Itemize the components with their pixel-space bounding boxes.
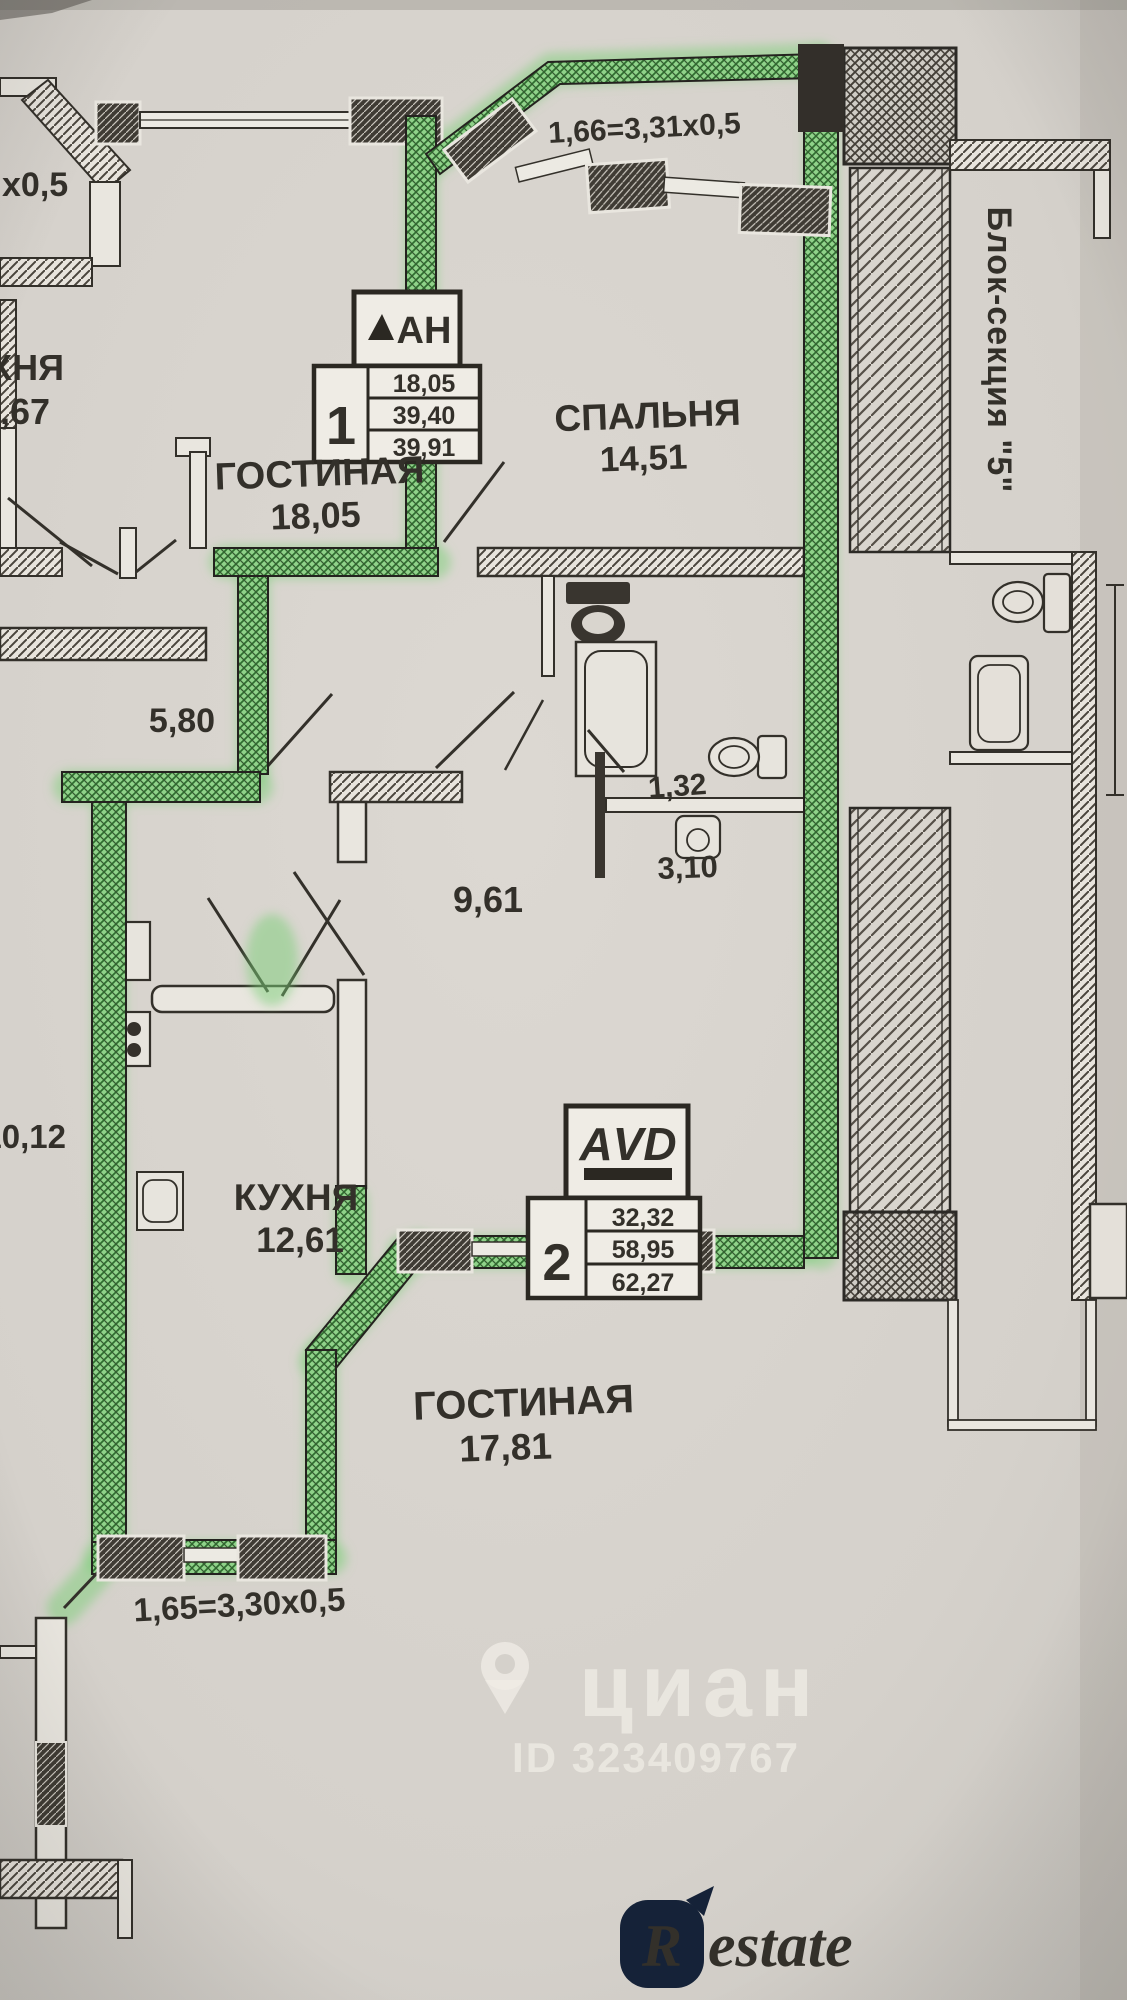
floor-plan-svg: АН 1 18,05 39,40 39,91 АVD 2 32,32 58,95… [0, 0, 1127, 2000]
photo-vignette [0, 0, 1127, 2000]
floor-plan-photo: АН 1 18,05 39,40 39,91 АVD 2 32,32 58,95… [0, 0, 1127, 2000]
